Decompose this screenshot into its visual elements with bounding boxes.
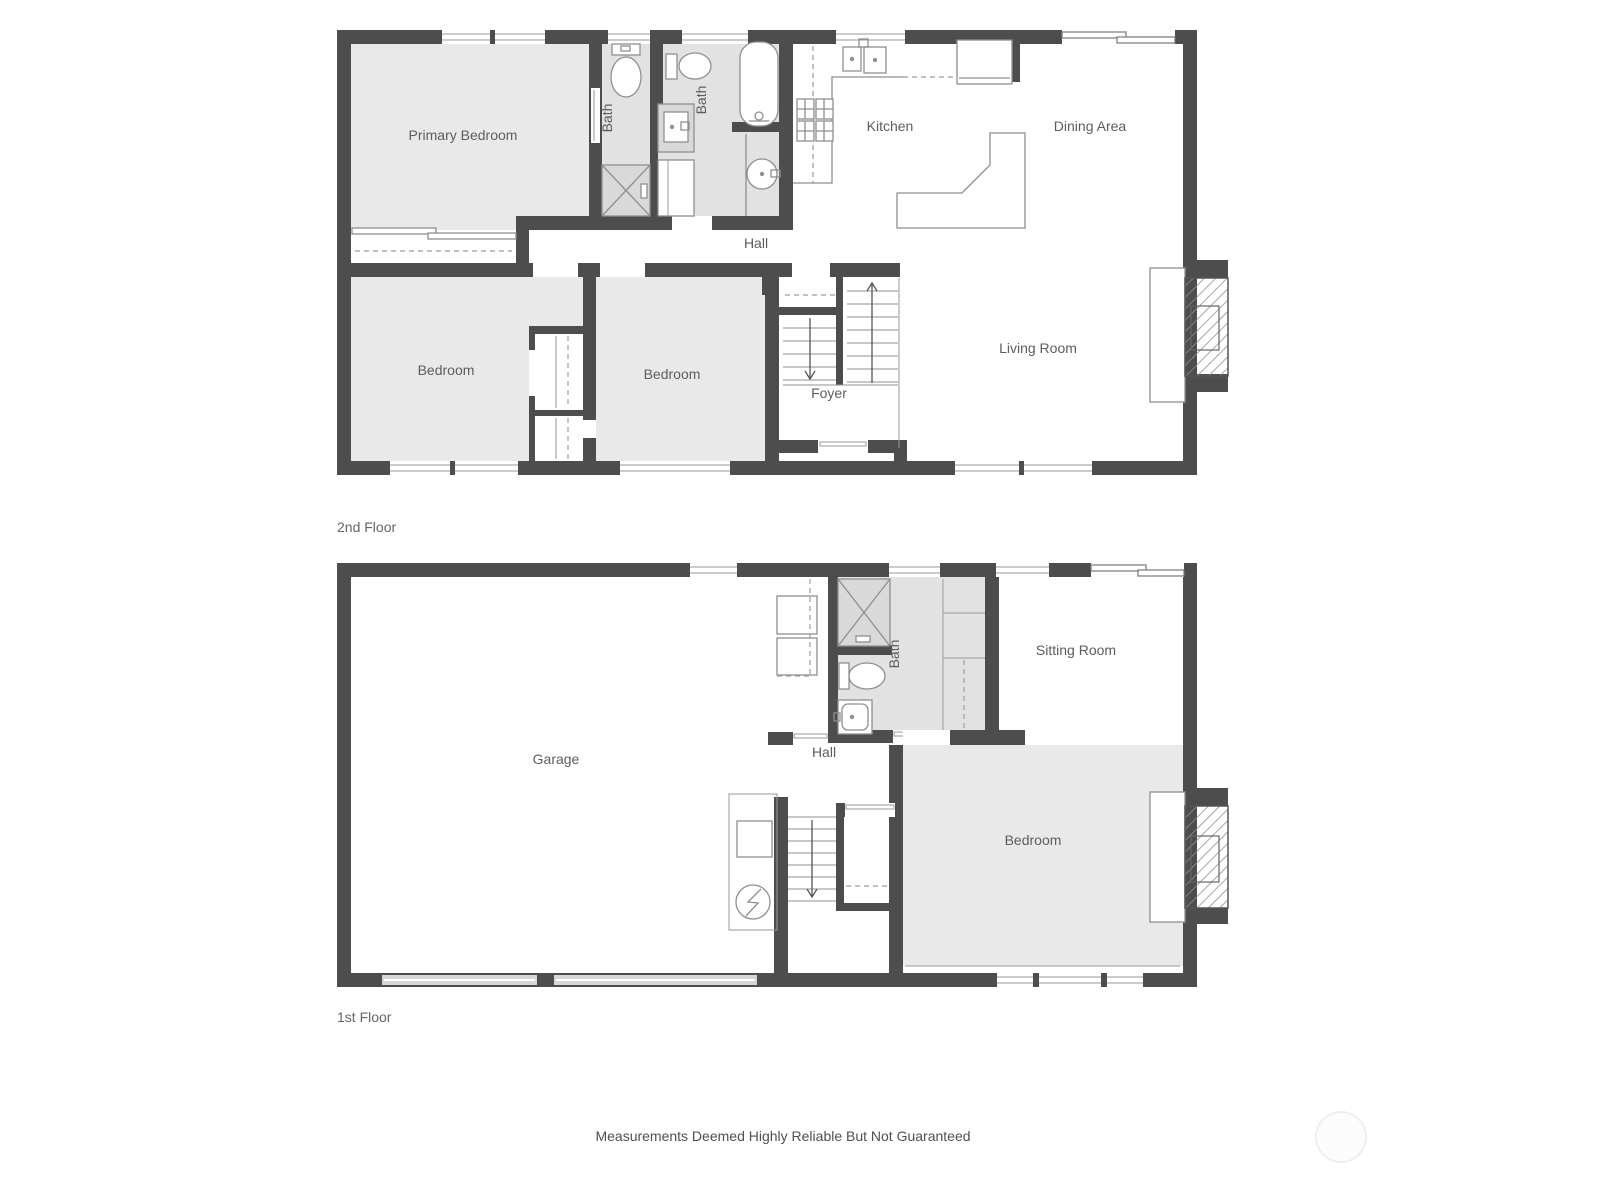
fireplace — [1150, 788, 1228, 924]
sliding-door — [1062, 30, 1175, 44]
kitchen-island — [897, 133, 1025, 228]
washer-icon — [777, 596, 817, 634]
disclaimer-text: Measurements Deemed Highly Reliable But … — [595, 1128, 970, 1144]
window — [836, 30, 905, 44]
kitchen-sink-icon — [843, 39, 886, 73]
window — [608, 30, 650, 44]
linen-closet — [658, 160, 694, 216]
stairs-up — [847, 283, 898, 383]
window — [955, 461, 1092, 475]
floor-plan-page: Primary Bedroom Bath Bath Kitchen Dining… — [0, 0, 1600, 1200]
vanity-sink-icon — [658, 104, 694, 152]
utility-area — [729, 794, 777, 930]
room-label-primary-bedroom: Primary Bedroom — [409, 127, 518, 143]
room-label-hall-1: Hall — [812, 744, 836, 760]
primary-closet — [352, 228, 516, 251]
floor1-plan: Garage Bath Sitting Room Hall Bedroom 1s… — [337, 563, 1228, 1025]
window — [889, 563, 940, 577]
bathtub-icon — [740, 42, 778, 126]
room-label-bedroom-left: Bedroom — [418, 362, 475, 378]
room-label-bedroom-right: Bedroom — [644, 366, 701, 382]
shower-icon — [838, 579, 890, 646]
watermark-circle — [1316, 1112, 1366, 1162]
window — [620, 461, 730, 475]
refrigerator-icon — [957, 40, 1012, 84]
window — [997, 973, 1143, 987]
room-label-garage: Garage — [533, 751, 580, 767]
room-label-bath-primary: Bath — [599, 104, 615, 133]
room-label-kitchen: Kitchen — [867, 118, 914, 134]
stove-icon — [797, 99, 833, 141]
room-bedroom-1f — [903, 745, 1190, 966]
electrical-panel-icon — [736, 885, 770, 919]
room-label-bath-1f: Bath — [886, 640, 902, 669]
toilet-icon — [666, 53, 711, 79]
dryer-icon — [777, 638, 817, 675]
garage-door — [382, 975, 537, 985]
furnace-icon — [737, 821, 772, 857]
window — [690, 563, 737, 577]
toilet-icon — [839, 663, 885, 689]
floor2-plan: Primary Bedroom Bath Bath Kitchen Dining… — [337, 30, 1228, 535]
shower-icon — [602, 165, 650, 216]
room-label-dining-area: Dining Area — [1054, 118, 1127, 134]
toilet-icon — [611, 44, 641, 97]
window — [682, 30, 748, 44]
floor-caption-1: 1st Floor — [337, 1009, 392, 1025]
window — [996, 563, 1049, 577]
room-label-living-room: Living Room — [999, 340, 1077, 356]
room-label-bath-hall: Bath — [693, 86, 709, 115]
room-label-foyer: Foyer — [811, 385, 847, 401]
floor-caption-2: 2nd Floor — [337, 519, 396, 535]
window — [442, 30, 545, 44]
sliding-door — [1091, 563, 1184, 577]
garage-door — [554, 975, 757, 985]
room-label-bedroom-1f: Bedroom — [1005, 832, 1062, 848]
window — [390, 461, 518, 475]
vanity-sink-icon — [834, 700, 872, 734]
stairs-down — [788, 817, 836, 901]
room-label-hall-2: Hall — [744, 235, 768, 251]
room-label-sitting-room: Sitting Room — [1036, 642, 1116, 658]
floor-plan-canvas: Primary Bedroom Bath Bath Kitchen Dining… — [0, 0, 1600, 1200]
